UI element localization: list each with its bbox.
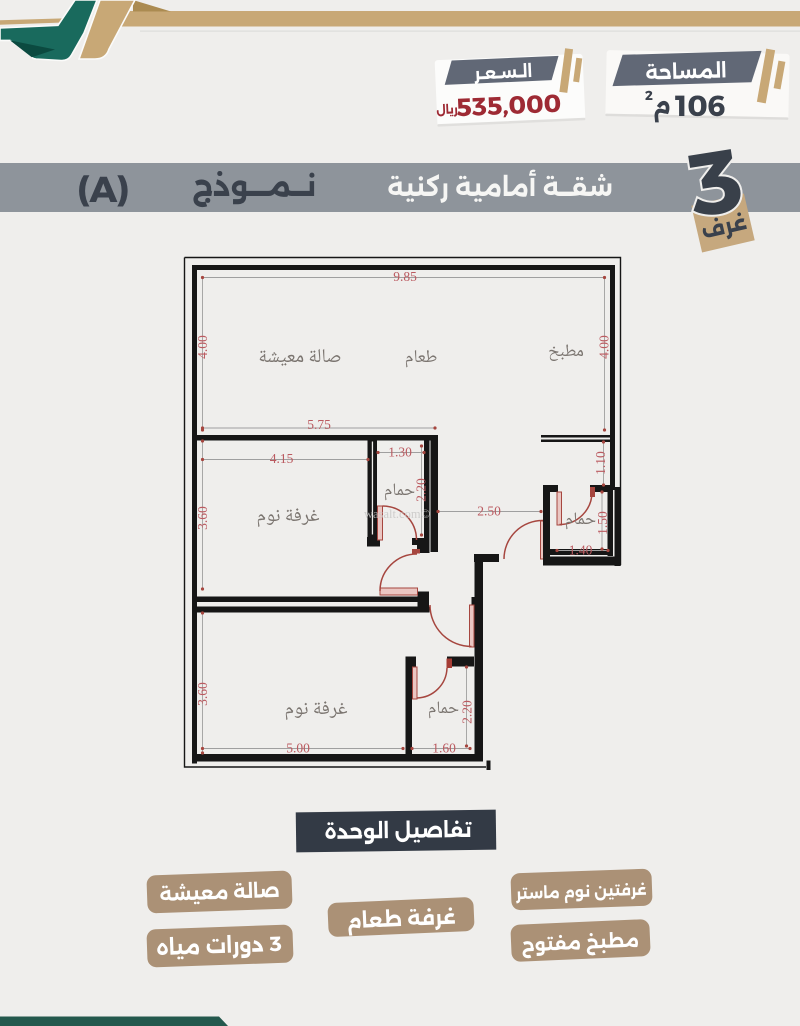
- svg-text:9.85: 9.85: [393, 269, 417, 284]
- svg-text:2.50: 2.50: [477, 504, 501, 519]
- svg-text:1.60: 1.60: [432, 741, 456, 756]
- svg-text:5.75: 5.75: [307, 417, 331, 432]
- svg-text:1.10: 1.10: [593, 451, 608, 475]
- svg-text:2.20: 2.20: [414, 478, 429, 502]
- svg-text:wasalt.com©: wasalt.com©: [364, 507, 430, 521]
- svg-text:1.40: 1.40: [569, 543, 593, 558]
- svg-text:5.00: 5.00: [286, 741, 310, 756]
- svg-text:1.50: 1.50: [595, 511, 610, 535]
- svg-text:3.60: 3.60: [195, 682, 210, 706]
- svg-text:2.20: 2.20: [460, 700, 475, 724]
- svg-text:1.30: 1.30: [388, 445, 412, 460]
- svg-text:3.60: 3.60: [195, 506, 210, 530]
- svg-text:4.00: 4.00: [597, 335, 612, 359]
- svg-text:4.00: 4.00: [195, 335, 210, 359]
- svg-text:4.15: 4.15: [270, 451, 294, 466]
